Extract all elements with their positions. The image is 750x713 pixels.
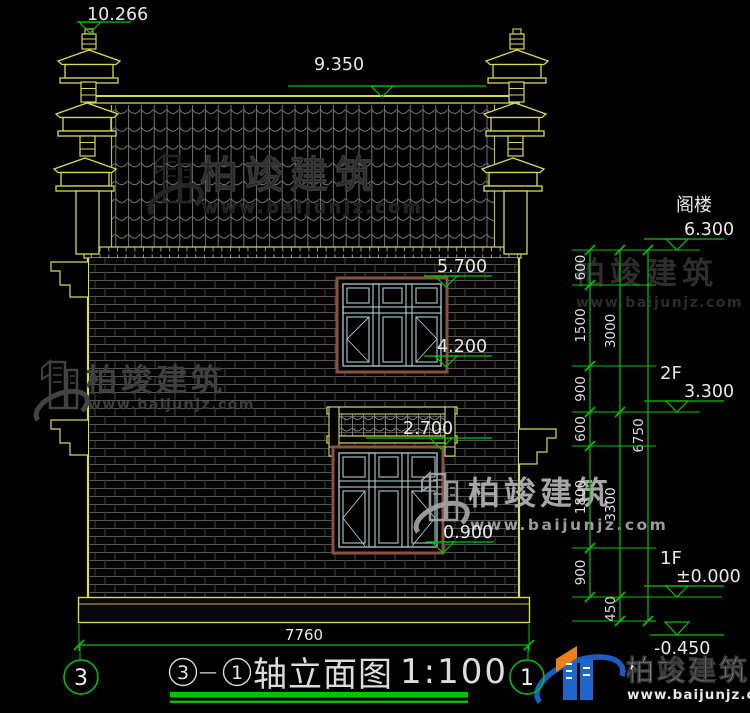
watermark-top-right: 柏竣建筑 www.baijunjz.com	[574, 256, 743, 311]
watermark-url: www.baijunjz.com	[470, 516, 668, 534]
dimension-value: 6750	[631, 418, 647, 452]
level-label: 2F	[660, 363, 682, 384]
dimension-value: 600	[573, 416, 589, 442]
cad-elevation-sheet: 柏竣建筑 www.baijunjz.com 柏竣建筑 www.baijunjz.…	[0, 0, 750, 713]
brand-logo: 柏竣建筑 www.baijunjz.com	[537, 646, 750, 703]
watermark-logo-icon	[36, 361, 87, 420]
elevation-drawing: 柏竣建筑 www.baijunjz.com 柏竣建筑 www.baijunjz.…	[0, 0, 750, 713]
watermark-url: www.baijunjz.com	[88, 397, 255, 413]
elevation-triangle-icon	[666, 239, 688, 250]
title-axis-left: 3	[177, 662, 189, 684]
title-separator: —	[199, 662, 217, 683]
dimension-value: 900	[573, 376, 589, 402]
drawing-title: 轴立面图	[253, 655, 393, 695]
logo-url-text: www.baijunjz.com	[627, 687, 750, 703]
watermark-brand: 柏竣建筑	[86, 363, 226, 399]
elevation-value: 5.700	[437, 257, 487, 277]
eave-bracket-left-lower	[51, 420, 88, 455]
elevation-value: 10.266	[87, 5, 148, 25]
logo-swoosh-icon	[537, 657, 623, 702]
axis-number: 1	[520, 666, 534, 691]
window-upper	[337, 278, 447, 372]
watermark-url: www.baijunjz.com	[576, 295, 743, 311]
elevation-triangle-icon	[666, 586, 688, 597]
elevation-value: 0.900	[443, 523, 493, 543]
elevation-triangle-icon	[666, 401, 688, 412]
gable-left	[54, 29, 120, 254]
watermark-url: www.baijunjz.com	[202, 198, 424, 218]
plinth	[79, 598, 530, 623]
drawing-scale: 1:100	[400, 652, 508, 692]
watermark-brand: 柏竣建筑	[200, 153, 380, 197]
dimension-value: 1800	[573, 480, 589, 514]
elevation-value: 3.300	[684, 382, 734, 402]
dimension-value: 900	[573, 560, 589, 586]
dimension-value: 600	[573, 255, 589, 281]
eave-bracket-left-upper	[51, 262, 88, 297]
elevation-triangle-icon	[665, 622, 689, 635]
level-label: 1F	[660, 548, 682, 569]
dimension-value: 3000	[603, 314, 619, 348]
dimension-value: 1500	[573, 308, 589, 342]
title-underline-thick	[170, 692, 468, 698]
title-underline-thin	[170, 701, 468, 704]
elevation-value: 9.350	[314, 55, 364, 75]
elevation-value: -0.450	[654, 639, 710, 659]
watermark-brand: 柏竣建筑	[574, 256, 718, 292]
title-axis-right: 1	[231, 662, 243, 684]
dimension-value: 3300	[603, 487, 619, 521]
dimension-value: 450	[603, 596, 619, 622]
elevation-value: 2.700	[403, 419, 453, 439]
dimension-value: 7760	[285, 626, 323, 644]
level-label: 阁楼	[676, 195, 712, 216]
elevation-value: 6.300	[684, 220, 734, 240]
axis-number: 3	[74, 666, 88, 691]
watermark-left: 柏竣建筑 www.baijunjz.com	[36, 361, 255, 420]
window-lower	[333, 447, 443, 553]
eave-bracket-right	[519, 429, 556, 464]
elevation-value: ±0.000	[676, 567, 741, 587]
elevation-value: 4.200	[437, 337, 487, 357]
title-block: 3 — 1 轴立面图 1:100	[170, 652, 508, 703]
